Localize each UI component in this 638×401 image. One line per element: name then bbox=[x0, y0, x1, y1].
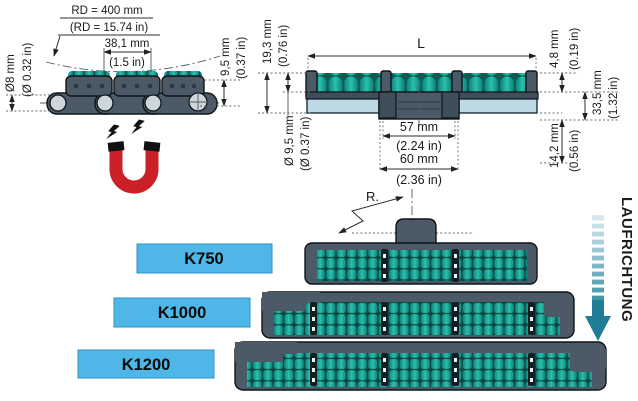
rd-dimension-label: RD = 400 mm bbox=[71, 5, 142, 17]
pitch-dimension-label-inches: (1.5 in) bbox=[109, 57, 145, 69]
roller-protrusion-label: 4,8 mm bbox=[549, 30, 561, 68]
hub-outer-width-label-inches: (2.36 in) bbox=[396, 173, 442, 187]
diagram-canvas: RD = 400 mm (RD = 15.74 in) 38,1 mm (1.5… bbox=[0, 0, 638, 401]
model-overview: R. bbox=[78, 189, 635, 390]
running-direction: LAUFRICHTUNG bbox=[585, 197, 635, 341]
belt-k1000 bbox=[262, 292, 574, 338]
total-height-label: 19,3 mm bbox=[262, 19, 274, 64]
radius-label: R. bbox=[366, 189, 379, 204]
rd-leader-line bbox=[54, 36, 60, 56]
side-height-label-inches: (1.32 in) bbox=[608, 77, 620, 119]
rd-dimension-label-inches: (RD = 15.74 in) bbox=[70, 22, 148, 34]
hub-width-label-inches: (2.24 in) bbox=[396, 139, 442, 153]
front-view-right-plate bbox=[459, 99, 537, 113]
model-label-k750-text: K750 bbox=[184, 250, 223, 268]
chain-datasheet-diagram: RD = 400 mm (RD = 15.74 in) 38,1 mm (1.5… bbox=[0, 0, 638, 401]
plate-height-label: 9,5 mm bbox=[220, 38, 232, 76]
belt-k1200 bbox=[235, 342, 606, 390]
chain-side-view: RD = 400 mm (RD = 15.74 in) 38,1 mm (1.5… bbox=[5, 5, 248, 114]
model-label-k1200: K1200 bbox=[78, 350, 214, 378]
running-direction-arrow-icon bbox=[585, 215, 611, 341]
model-label-k1200-text: K1200 bbox=[122, 356, 171, 374]
front-view-left-plate bbox=[307, 99, 379, 113]
total-height-label-inches: (0.76 in) bbox=[278, 25, 290, 67]
roller-diameter-label-inches: (Ø 0.37 in) bbox=[300, 117, 312, 171]
hub-outer-width-label: 60 mm bbox=[400, 152, 438, 166]
belt-k750 bbox=[305, 219, 537, 284]
bottom-height-label: 14,2 mm bbox=[549, 123, 561, 168]
chain-front-view: L 19,3 mm (0.76 in) Ø 9,5 mm (Ø 0.37 in)… bbox=[258, 19, 620, 187]
running-direction-label: LAUFRICHTUNG bbox=[618, 197, 635, 322]
pin-diameter-label-inches: (Ø 0.32 in) bbox=[22, 43, 34, 97]
lightning-icon bbox=[106, 124, 120, 142]
bottom-height-label-inches: (0.56 in) bbox=[569, 130, 581, 172]
belt-k750-tab bbox=[396, 219, 436, 244]
magnet-icon bbox=[106, 119, 160, 187]
plate-height-label-inches: (0.37 in) bbox=[236, 37, 248, 79]
model-label-k750: K750 bbox=[137, 244, 272, 273]
roller-diameter-label: Ø 9,5 mm bbox=[284, 116, 296, 166]
model-label-k1000-text: K1000 bbox=[158, 304, 207, 322]
model-label-k1000: K1000 bbox=[114, 298, 250, 327]
pitch-dimension-label: 38,1 mm bbox=[105, 38, 150, 50]
side-height-label: 33,5 mm bbox=[592, 70, 604, 115]
pin-diameter-label: Ø8 mm bbox=[5, 54, 17, 92]
lightning-icon bbox=[131, 119, 145, 137]
side-view-links bbox=[47, 76, 217, 114]
roller-protrusion-label-inches: (0.19 in) bbox=[569, 28, 581, 70]
belt-width-label: L bbox=[417, 35, 425, 51]
hub-width-label: 57 mm bbox=[400, 120, 438, 134]
front-view-rollers bbox=[307, 73, 537, 92]
